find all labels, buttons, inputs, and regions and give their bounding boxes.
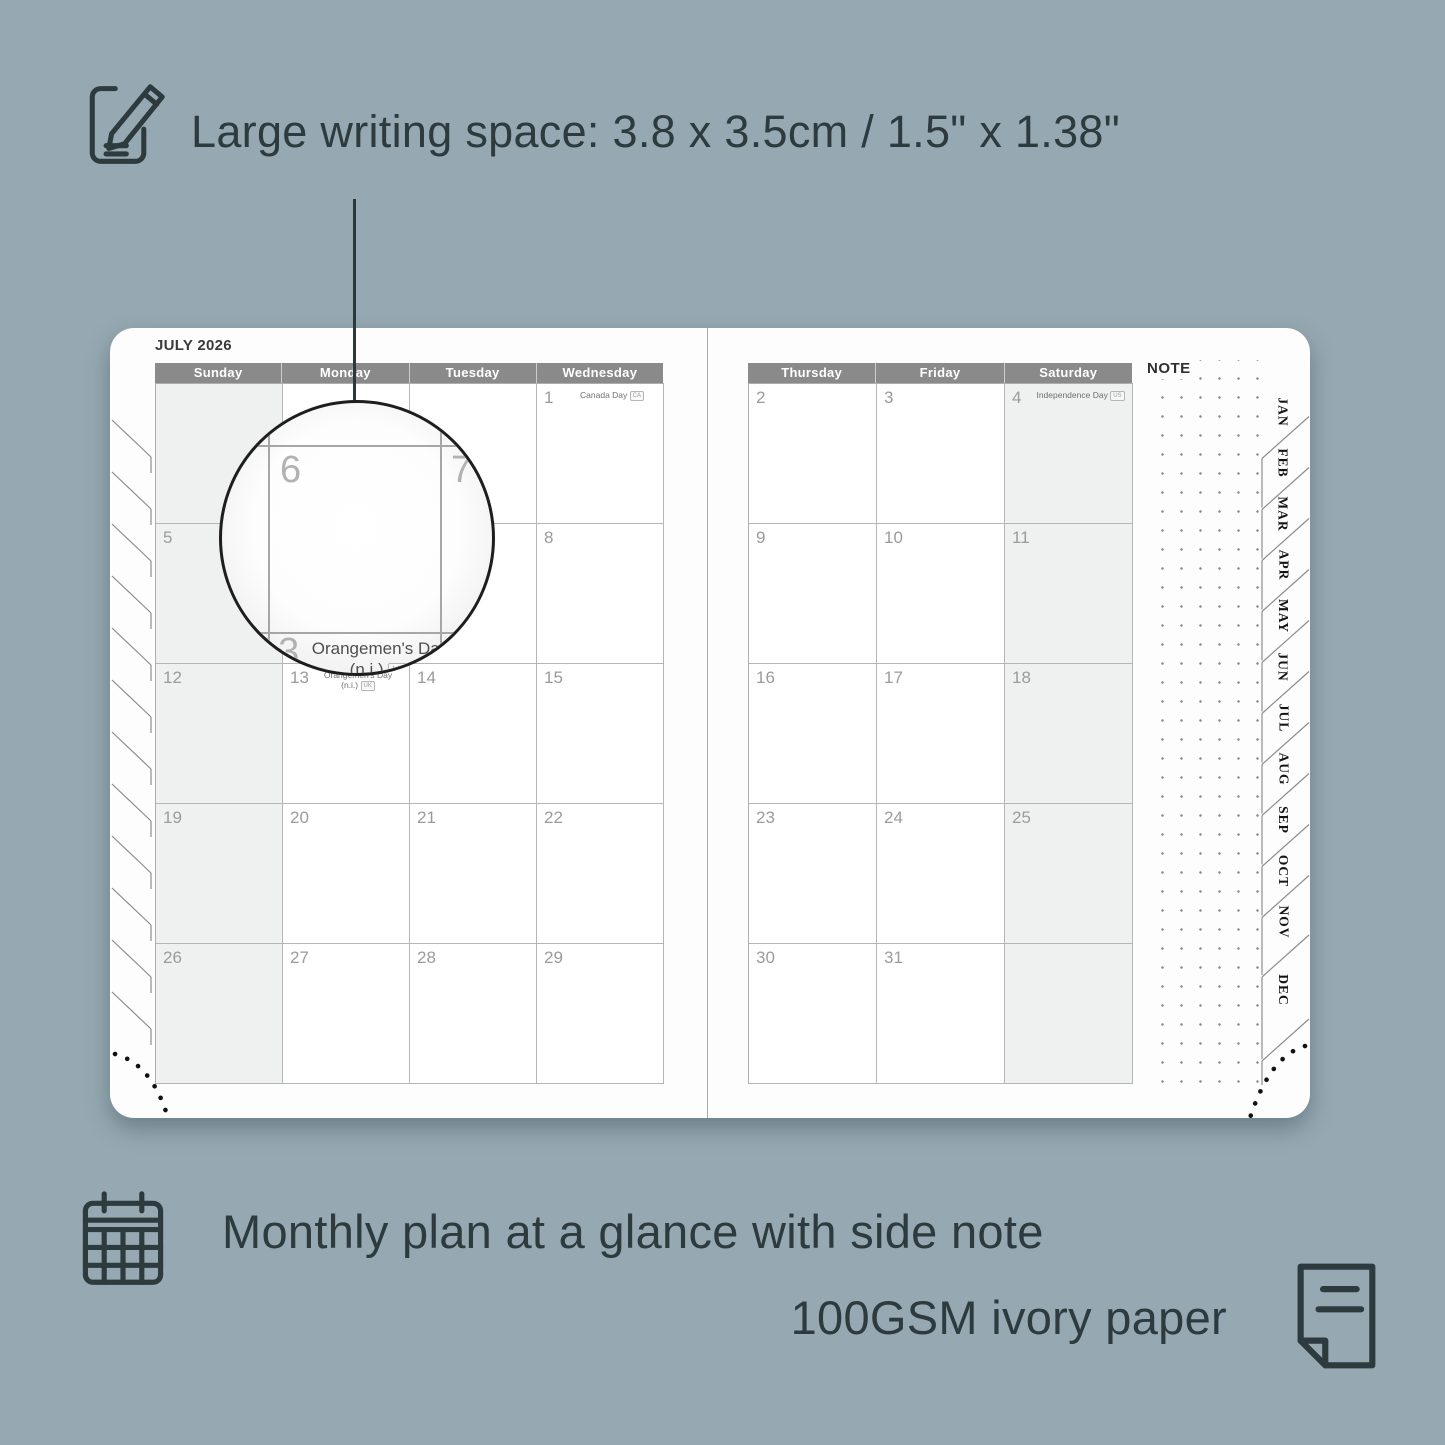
magnified-day-13: 13 bbox=[257, 631, 299, 674]
holiday-country-badge: US bbox=[1110, 391, 1124, 401]
calendar-cell: 25 bbox=[1005, 804, 1133, 944]
magnified-holiday-line1: Orangemen's Day bbox=[308, 638, 452, 659]
holiday-country-badge: CA bbox=[630, 391, 644, 401]
side-note-panel: NOTE bbox=[1145, 360, 1273, 1090]
month-tab-feb: FEB bbox=[1261, 443, 1305, 483]
month-tab-may: MAY bbox=[1261, 596, 1305, 636]
calendar-cell: 4Independence Day US bbox=[1005, 384, 1133, 524]
calendar-cell: 21 bbox=[410, 804, 537, 944]
day-number: 1 bbox=[544, 388, 553, 408]
day-number: 8 bbox=[544, 528, 553, 548]
month-tab-label: APR bbox=[1275, 550, 1291, 581]
calendar-cell: 12 bbox=[156, 664, 283, 804]
month-tab-nov: NOV bbox=[1261, 902, 1305, 942]
calendar-cell: 13Orangemen's Day (n.i.) UK bbox=[283, 664, 410, 804]
day-number: 21 bbox=[417, 808, 436, 828]
month-tab-label: NOV bbox=[1275, 906, 1291, 939]
magnified-day-6: 6 bbox=[280, 449, 301, 492]
month-tab-label: JAN bbox=[1275, 397, 1291, 426]
day-number: 30 bbox=[756, 948, 775, 968]
day-number: 5 bbox=[163, 528, 172, 548]
calendar-cell: 24 bbox=[877, 804, 1005, 944]
day-header-monday: Monday bbox=[282, 363, 409, 383]
day-number: 10 bbox=[884, 528, 903, 548]
note-label: NOTE bbox=[1147, 360, 1195, 379]
calendar-cell: 19 bbox=[156, 804, 283, 944]
month-tab-strip: JANFEBMARAPRMAYJUNJULAUGSEPOCTNOVDEC bbox=[1256, 385, 1310, 1085]
month-tab-sep: SEP bbox=[1261, 800, 1305, 840]
month-tab-label: OCT bbox=[1275, 855, 1291, 887]
feature-monthly-plan-label: Monthly plan at a glance with side note bbox=[222, 1204, 1044, 1259]
day-number: 28 bbox=[417, 948, 436, 968]
month-tab-mar: MAR bbox=[1261, 494, 1305, 534]
day-number: 2 bbox=[756, 388, 765, 408]
left-page-edge-tabs bbox=[111, 400, 153, 1060]
calendar-cell: 31 bbox=[877, 944, 1005, 1084]
day-number: 18 bbox=[1012, 668, 1031, 688]
calendar-cell: 27 bbox=[283, 944, 410, 1084]
day-number: 19 bbox=[163, 808, 182, 828]
calendar-cell: 16 bbox=[749, 664, 877, 804]
month-tab-label: MAR bbox=[1275, 496, 1291, 531]
calendar-cell: 2 bbox=[749, 384, 877, 524]
calendar-cell: 29 bbox=[537, 944, 664, 1084]
calendar-cell: 30 bbox=[749, 944, 877, 1084]
day-header-tuesday: Tuesday bbox=[410, 363, 537, 383]
magnifier-circle: 6 7 13 Orangemen's Day (n.i.) UK bbox=[219, 400, 495, 676]
day-header-saturday: Saturday bbox=[1005, 363, 1132, 383]
day-number: 11 bbox=[1012, 528, 1030, 548]
day-header-sunday: Sunday bbox=[155, 363, 282, 383]
month-tab-jul: JUL bbox=[1261, 698, 1305, 738]
day-number: 17 bbox=[884, 668, 903, 688]
magnified-grid-line bbox=[222, 445, 492, 447]
right-page-calendar-grid: 234Independence Day US910111617182324253… bbox=[748, 383, 1133, 1084]
holiday-country-badge: UK bbox=[361, 681, 375, 691]
month-tab-label: JUL bbox=[1275, 704, 1291, 733]
day-number: 3 bbox=[884, 388, 893, 408]
month-tab-label: AUG bbox=[1275, 753, 1291, 786]
month-tab-dec: DEC bbox=[1261, 970, 1305, 1010]
day-header-friday: Friday bbox=[876, 363, 1004, 383]
calendar-cell: 28 bbox=[410, 944, 537, 1084]
month-tab-label: JUN bbox=[1275, 652, 1291, 681]
paper-sheet-icon bbox=[1276, 1260, 1388, 1372]
day-number: 27 bbox=[290, 948, 309, 968]
holiday-label: Canada Day CA bbox=[565, 390, 659, 401]
month-tab-jan: JAN bbox=[1261, 392, 1305, 432]
day-number: 4 bbox=[1012, 388, 1021, 408]
holiday-label: Independence Day US bbox=[1033, 390, 1128, 401]
note-dot-grid bbox=[1145, 360, 1273, 1090]
calendar-cell: 23 bbox=[749, 804, 877, 944]
day-header-thursday: Thursday bbox=[748, 363, 876, 383]
calendar-cell: 22 bbox=[537, 804, 664, 944]
magnified-holiday: Orangemen's Day (n.i.) UK bbox=[308, 638, 452, 676]
day-number: 25 bbox=[1012, 808, 1031, 828]
magnifier-connector-line bbox=[353, 199, 356, 405]
calendar-cell: 20 bbox=[283, 804, 410, 944]
month-title: JULY 2026 bbox=[155, 337, 232, 354]
page-spine bbox=[707, 328, 708, 1118]
day-number: 20 bbox=[290, 808, 309, 828]
day-number: 22 bbox=[544, 808, 563, 828]
day-number: 31 bbox=[884, 948, 903, 968]
calendar-cell: 8 bbox=[537, 524, 664, 664]
month-tab-jun: JUN bbox=[1261, 647, 1305, 687]
month-tab-aug: AUG bbox=[1261, 749, 1305, 789]
day-number: 29 bbox=[544, 948, 563, 968]
day-number: 16 bbox=[756, 668, 775, 688]
magnified-day-7: 7 bbox=[451, 449, 472, 492]
calendar-cell: 3 bbox=[877, 384, 1005, 524]
day-number: 23 bbox=[756, 808, 775, 828]
product-image-canvas: Large writing space: 3.8 x 3.5cm / 1.5" … bbox=[0, 0, 1445, 1445]
calendar-cell bbox=[1005, 944, 1133, 1084]
month-tab-label: MAY bbox=[1275, 599, 1291, 633]
calendar-cell: 17 bbox=[877, 664, 1005, 804]
month-tab-label: FEB bbox=[1275, 448, 1291, 477]
calendar-cell: 15 bbox=[537, 664, 664, 804]
day-number: 24 bbox=[884, 808, 903, 828]
calendar-grid-icon bbox=[76, 1188, 170, 1290]
pencil-note-icon bbox=[84, 68, 176, 170]
month-tab-label: SEP bbox=[1275, 806, 1291, 834]
calendar-cell: 10 bbox=[877, 524, 1005, 664]
feature-paper-label: 100GSM ivory paper bbox=[791, 1290, 1227, 1345]
calendar-cell: 26 bbox=[156, 944, 283, 1084]
calendar-cell: 1Canada Day CA bbox=[537, 384, 664, 524]
calendar-cell: 18 bbox=[1005, 664, 1133, 804]
feature-writing-space-label: Large writing space: 3.8 x 3.5cm / 1.5" … bbox=[191, 106, 1120, 158]
month-tab-oct: OCT bbox=[1261, 851, 1305, 891]
calendar-cell: 11 bbox=[1005, 524, 1133, 664]
month-tab-label: DEC bbox=[1275, 974, 1291, 1006]
magnified-holiday-ni: (n.i.) bbox=[350, 660, 384, 676]
day-number: 26 bbox=[163, 948, 182, 968]
day-number: 12 bbox=[163, 668, 182, 688]
day-header-wednesday: Wednesday bbox=[537, 363, 663, 383]
day-number: 15 bbox=[544, 668, 563, 688]
day-number: 9 bbox=[756, 528, 765, 548]
left-page-day-header-row: Sunday Monday Tuesday Wednesday bbox=[155, 363, 663, 383]
calendar-cell: 14 bbox=[410, 664, 537, 804]
calendar-cell: 9 bbox=[749, 524, 877, 664]
right-page-day-header-row: Thursday Friday Saturday bbox=[748, 363, 1132, 383]
month-tab-apr: APR bbox=[1261, 545, 1305, 585]
